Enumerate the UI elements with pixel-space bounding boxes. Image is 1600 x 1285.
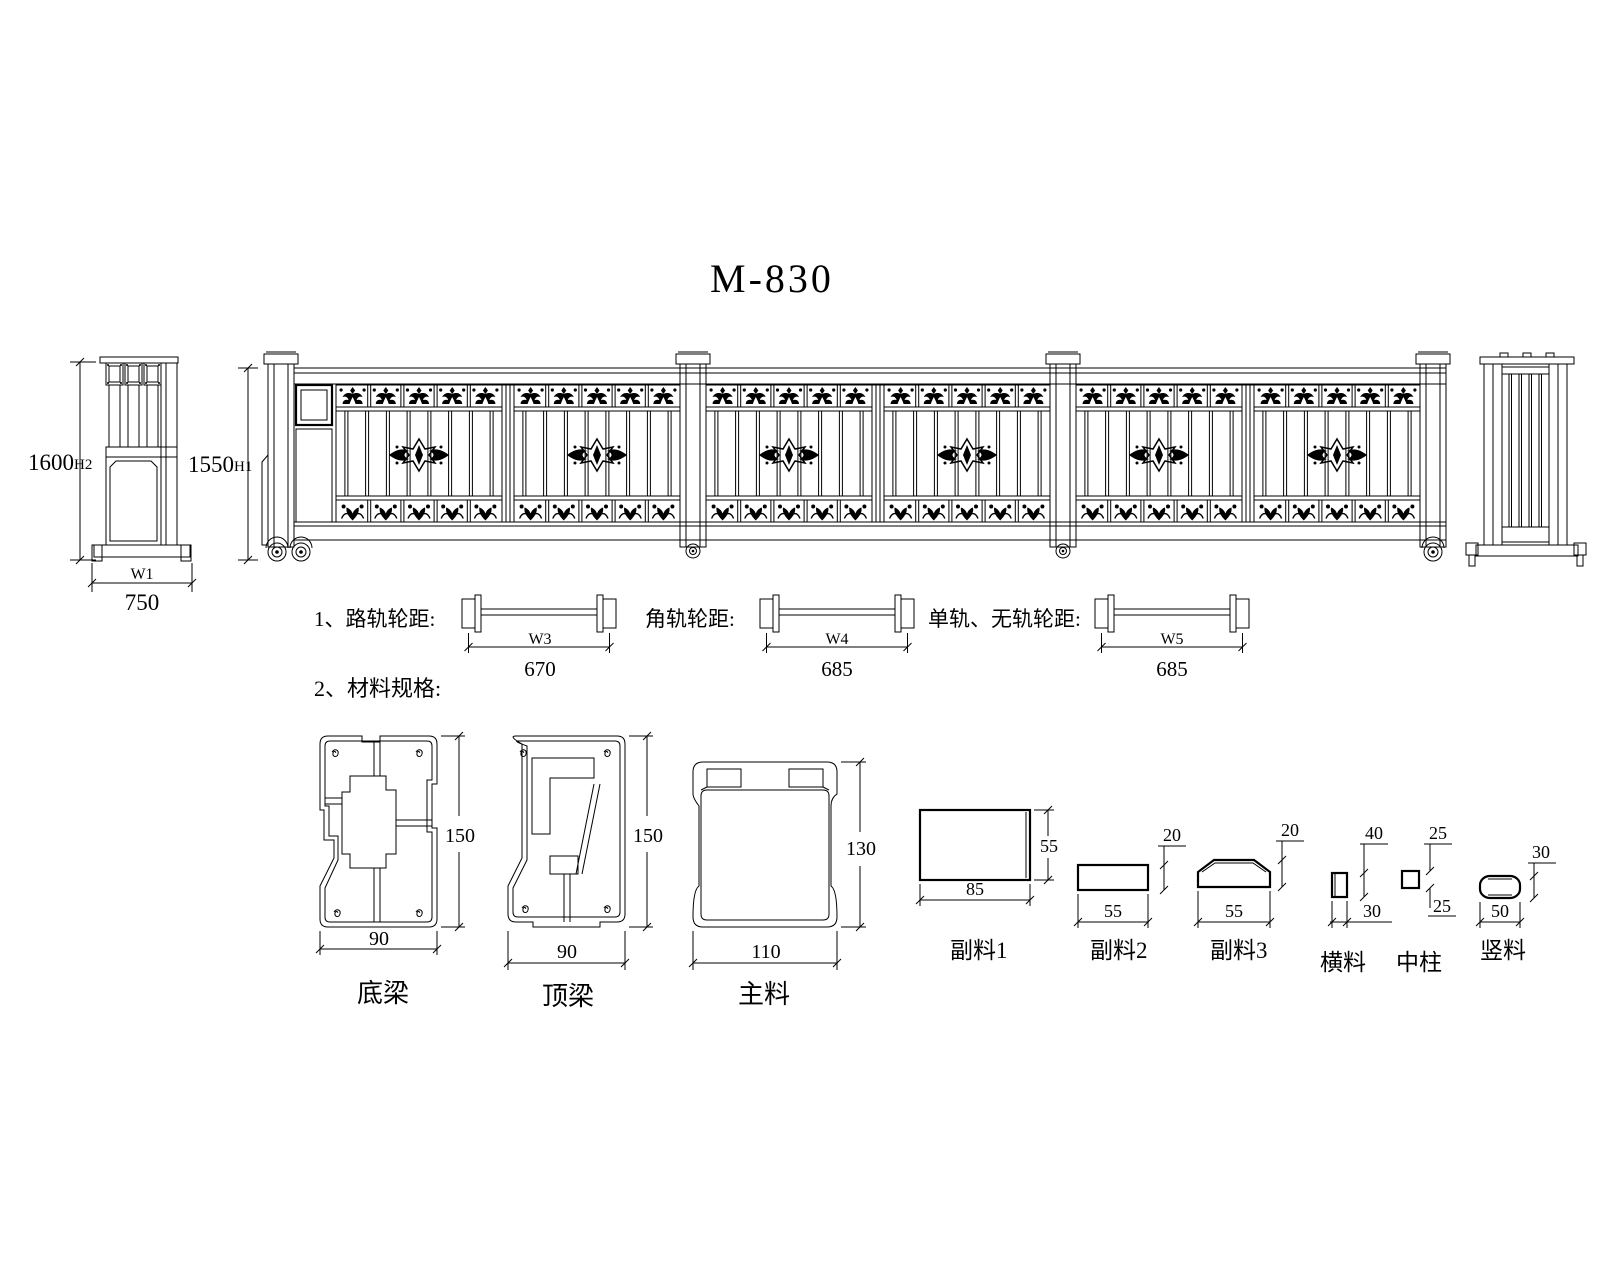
- label-vertical-bar: 竖料: [1480, 938, 1526, 963]
- dim-150-top-beam: 150: [633, 825, 663, 847]
- dim-55-aux1: 55: [1040, 836, 1058, 856]
- rear-column-view: [1466, 353, 1586, 566]
- dim-110-main-rail: 110: [751, 941, 780, 963]
- dim-width-w1: W1 750: [88, 563, 196, 615]
- intermediate-post: [1046, 352, 1080, 558]
- intermediate-post: [676, 352, 710, 558]
- dim-25-center-post-top: 25: [1429, 823, 1447, 843]
- spacing-label-3: 单轨、无轨轮距:: [928, 607, 1081, 631]
- dim-30-vertical-bar: 30: [1532, 842, 1550, 862]
- label-center-post: 中柱: [1396, 950, 1442, 975]
- dim-750: 750: [125, 590, 160, 615]
- end-post: [1416, 352, 1450, 561]
- label-aux1: 副料1: [950, 938, 1008, 963]
- dim-90-bottom-beam: 90: [369, 928, 389, 950]
- spacing-tag-w5: W5: [1160, 631, 1183, 648]
- dim-90-top-beam: 90: [557, 941, 577, 963]
- dim-55-aux2: 55: [1104, 901, 1122, 921]
- label-bottom-beam: 底梁: [357, 979, 409, 1008]
- wheel-spacing-row: 1、路轨轮距: W3 670 角轨轮距: W4 685 单轨、无轨轮距: W5 …: [314, 595, 1249, 681]
- dim-30-horizontal-bar: 30: [1363, 901, 1381, 921]
- label-top-beam: 顶梁: [542, 982, 594, 1011]
- front-column-view: 1600 H2 W1 750: [28, 357, 196, 615]
- dim-1550: 1550: [188, 452, 234, 477]
- spacing-value-670: 670: [524, 657, 556, 681]
- dim-85-aux1: 85: [966, 879, 984, 899]
- spacing-value-685a: 685: [821, 657, 853, 681]
- dim-height-h1: 1550 H1: [188, 364, 258, 564]
- dim-150-bottom-beam: 150: [445, 825, 475, 847]
- dim-20-aux3: 20: [1281, 820, 1299, 840]
- dim-20-aux2: 20: [1163, 825, 1181, 845]
- profile-aux2: 20 55 副料2: [1074, 825, 1186, 963]
- bolt-plate: [144, 363, 161, 385]
- dim-tag-h1: H1: [234, 459, 252, 475]
- profile-vertical-bar: 30 50 竖料: [1476, 842, 1556, 963]
- drawing-title: M-830: [710, 256, 834, 301]
- label-main-rail: 主料: [738, 980, 790, 1009]
- spacing-tag-w3: W3: [528, 631, 551, 648]
- gate-elevation: 1550 H1: [188, 352, 1450, 564]
- label-horizontal-bar: 横料: [1320, 950, 1366, 975]
- cad-sheet: M-830: [0, 0, 1600, 1280]
- profile-aux3: 20 55 副料3: [1194, 820, 1304, 963]
- label-aux3: 副料3: [1210, 938, 1268, 963]
- leading-post: [262, 352, 312, 561]
- dim-40-horizontal-bar: 40: [1365, 823, 1383, 843]
- dim-55-aux3: 55: [1225, 901, 1243, 921]
- dims-main-rail: 130 110 主料: [689, 758, 876, 1009]
- profile-bottom-beam: [320, 736, 437, 927]
- profile-center-post: 25 25 中柱: [1396, 823, 1456, 975]
- dim-130-main-rail: 130: [846, 838, 876, 860]
- dim-tag-h2: H2: [74, 457, 92, 473]
- bolt-plate: [125, 363, 142, 385]
- spacing-value-685b: 685: [1156, 657, 1188, 681]
- dim-1600: 1600: [28, 450, 74, 475]
- dim-25-center-post-bottom: 25: [1433, 896, 1451, 916]
- dims-top-beam: 150 90 顶梁: [504, 732, 663, 1011]
- profile-horizontal-bar: 40 30 横料: [1320, 823, 1392, 975]
- profile-top-beam: [508, 736, 625, 927]
- dim-50-vertical-bar: 50: [1491, 901, 1509, 921]
- control-box: [296, 385, 332, 425]
- bolt-plate: [106, 363, 123, 385]
- spacing-label-1: 1、路轨轮距:: [314, 607, 435, 631]
- profile-main-rail: [693, 762, 837, 927]
- leading-blank-panel: [296, 429, 332, 522]
- profile-aux1: 55 85 副料1: [916, 806, 1058, 963]
- spacing-tag-w4: W4: [825, 631, 848, 648]
- label-aux2: 副料2: [1090, 938, 1148, 963]
- drawing-svg: M-830: [0, 0, 1600, 1280]
- dim-height-h2: 1600 H2: [28, 358, 96, 564]
- spacing-label-2: 角轨轮距:: [645, 607, 735, 631]
- materials-heading: 2、材料规格:: [314, 676, 441, 701]
- dims-bottom-beam: 150 90 底梁: [316, 732, 475, 1008]
- dim-tag-w1: W1: [130, 566, 153, 583]
